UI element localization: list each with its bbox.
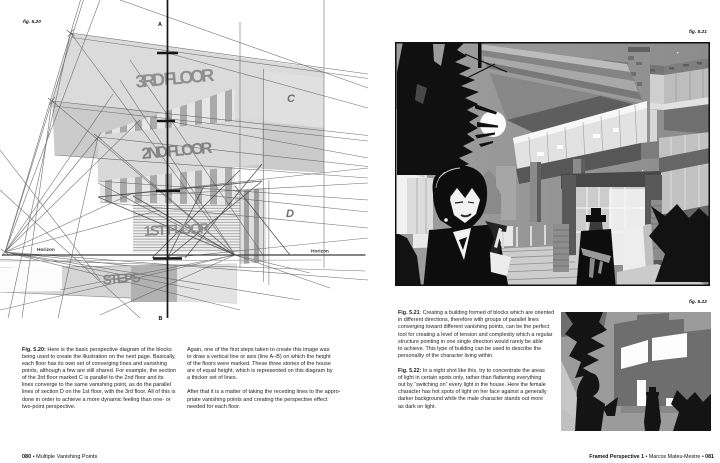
svg-text:D: D — [286, 208, 294, 220]
svg-text:A: A — [158, 22, 162, 28]
svg-text:Horizon: Horizon — [37, 247, 55, 253]
svg-text:Horizon: Horizon — [311, 249, 329, 255]
svg-text:STEPS: STEPS — [102, 270, 141, 288]
svg-text:B: B — [159, 316, 163, 322]
svg-text:C: C — [287, 93, 296, 105]
